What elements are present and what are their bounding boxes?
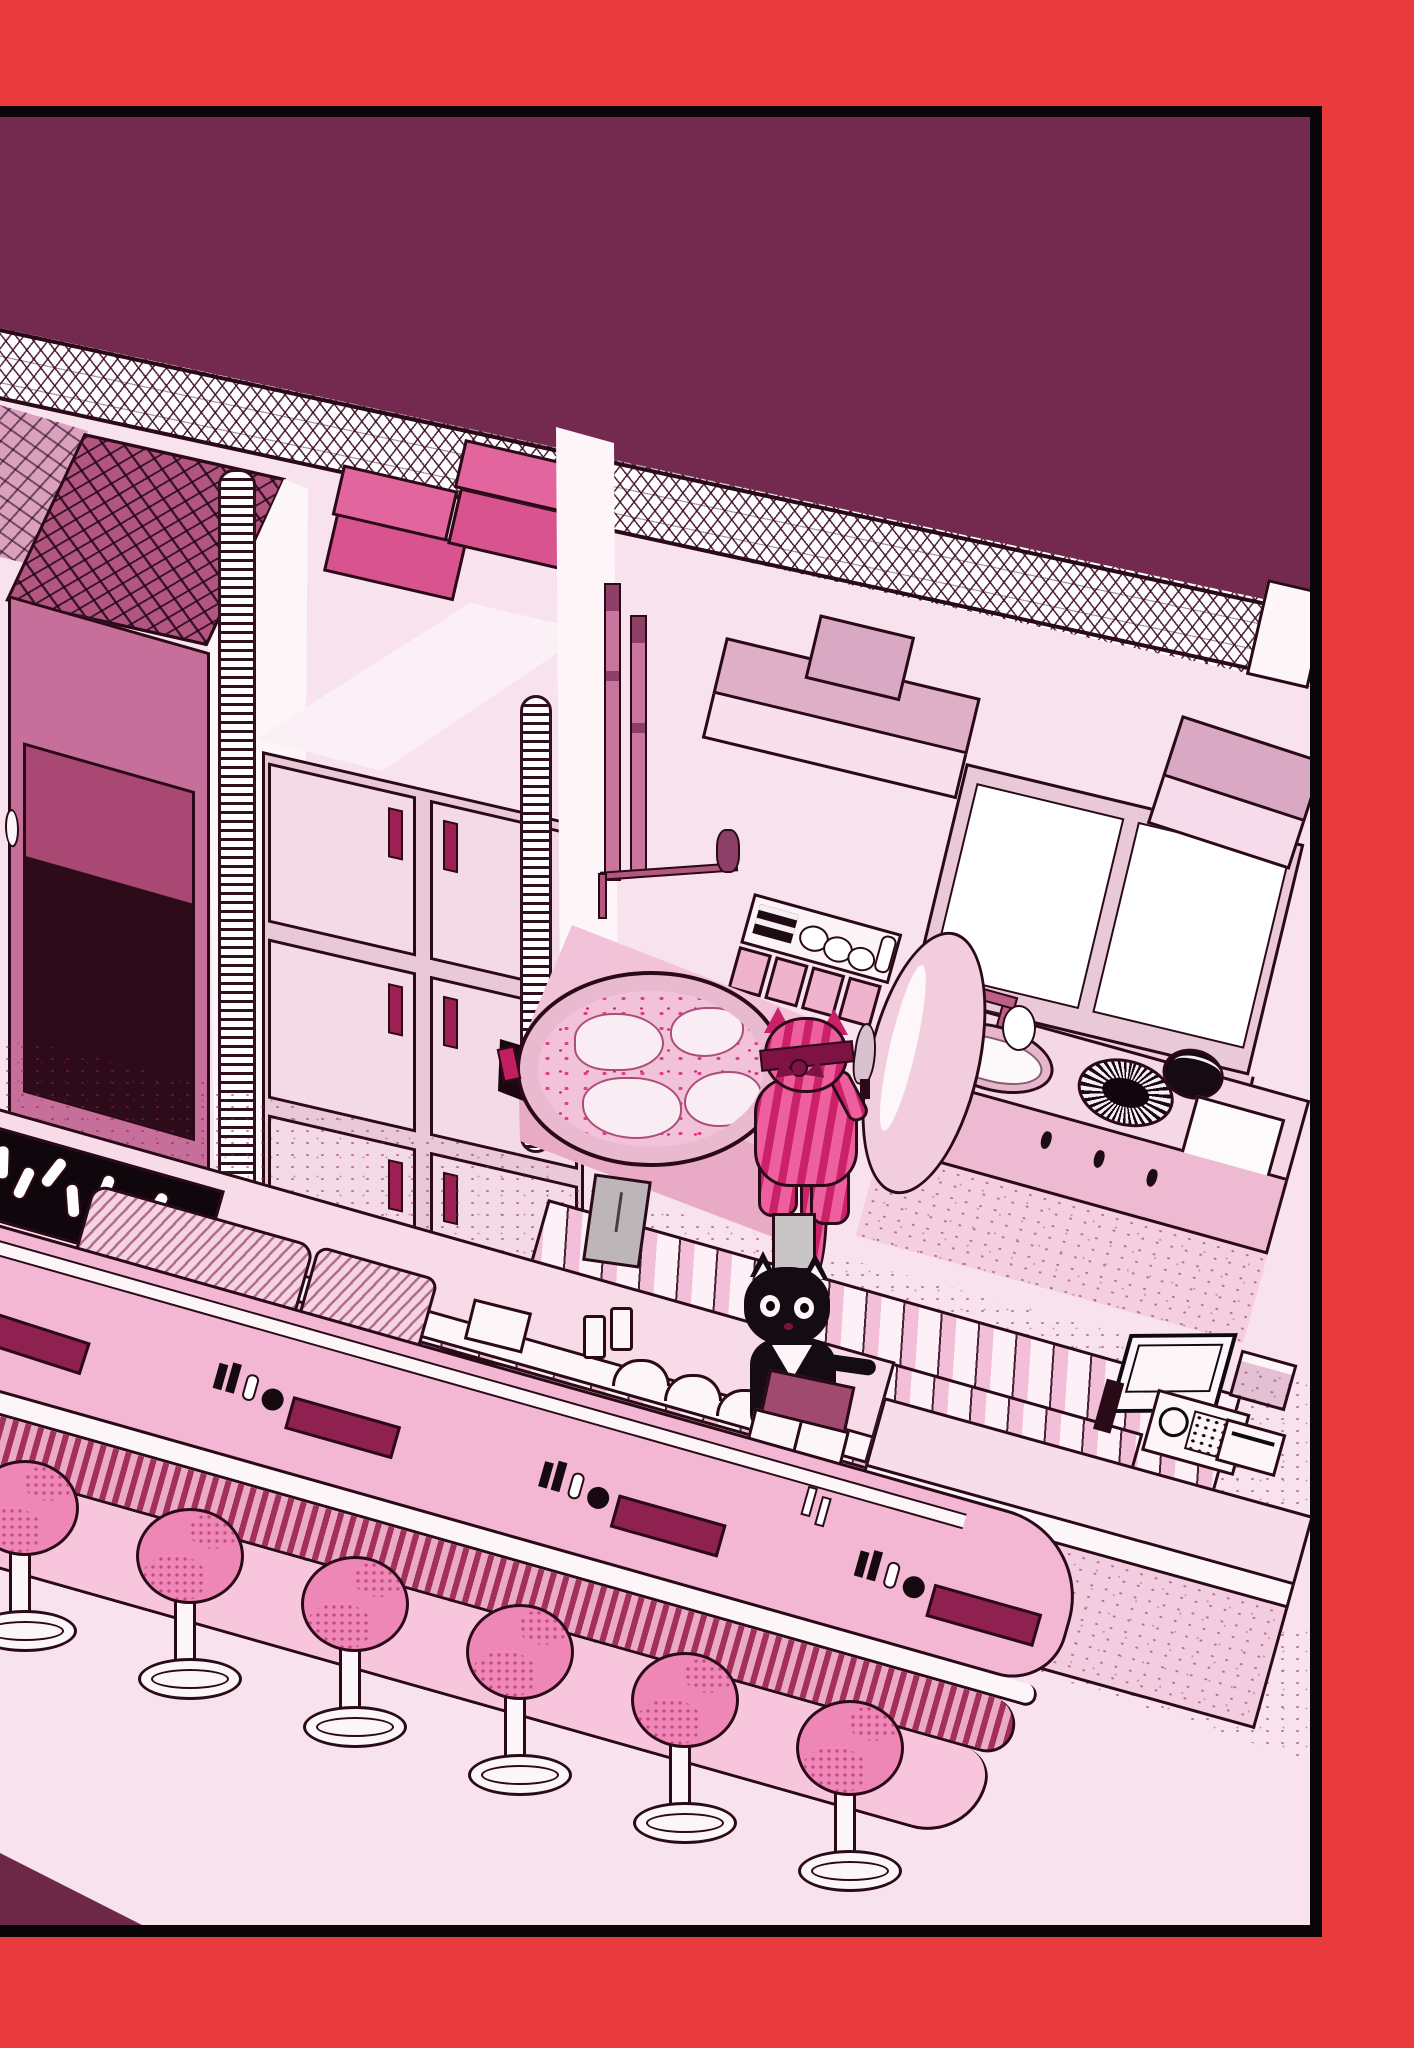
napkin-box <box>610 1494 727 1557</box>
napkin-box <box>925 1584 1042 1647</box>
bar-stool <box>790 1700 910 1915</box>
locker-handle <box>443 996 458 1049</box>
stool-base <box>138 1658 242 1700</box>
stool-base <box>798 1850 902 1892</box>
broth-blob <box>582 1077 682 1139</box>
cat-eye <box>794 1297 814 1319</box>
knife-blade <box>850 1022 880 1086</box>
bottle <box>9 1163 38 1202</box>
shaker <box>241 1373 261 1403</box>
locker-handle <box>388 807 403 860</box>
cup <box>610 1307 633 1351</box>
bottle <box>873 934 899 975</box>
ladle-head <box>1002 1005 1036 1051</box>
condiment-ball <box>900 1574 927 1601</box>
pipe <box>604 583 621 881</box>
stool-seat <box>631 1652 739 1748</box>
condiment-ball <box>585 1484 612 1511</box>
bar-stool <box>625 1652 745 1867</box>
napkin-box <box>0 1309 91 1376</box>
condiment-set <box>530 1455 739 1567</box>
burner-knob <box>1039 1130 1053 1150</box>
bottle <box>0 1144 11 1180</box>
cat-head <box>744 1267 830 1345</box>
stool-seat <box>796 1700 904 1796</box>
napkin-box <box>284 1396 401 1459</box>
condiment-ball <box>259 1386 286 1413</box>
bar-stool <box>295 1556 415 1771</box>
fridge-hinge <box>5 807 19 849</box>
soup-pot <box>516 971 786 1167</box>
chopstick-stand <box>800 1486 818 1518</box>
knife-handle <box>860 1079 870 1099</box>
burner-knob <box>1092 1149 1106 1169</box>
bar-stool <box>0 1460 85 1675</box>
black-cat <box>742 1259 882 1459</box>
bar-stool <box>460 1604 580 1819</box>
stool-seat <box>466 1604 574 1700</box>
shaker <box>566 1471 586 1501</box>
faucet-spout <box>598 873 607 919</box>
stool-seat <box>0 1460 79 1556</box>
tap-body <box>716 829 740 873</box>
chopstick-stand <box>814 1496 832 1528</box>
stool-base <box>633 1802 737 1844</box>
stool-base <box>468 1754 572 1796</box>
locker-handle <box>388 983 403 1036</box>
dustpan <box>582 1173 652 1268</box>
wok-center <box>1099 1073 1153 1114</box>
condiment-set <box>205 1357 414 1469</box>
pipe <box>630 615 647 877</box>
locker-handle <box>443 820 458 873</box>
card-reader-box <box>1229 1350 1298 1412</box>
bar-stool <box>130 1508 250 1723</box>
range-hood <box>702 637 981 799</box>
stool-base <box>0 1610 77 1652</box>
cat-eye <box>760 1295 780 1317</box>
stool-seat <box>136 1508 244 1604</box>
stool-base <box>303 1706 407 1748</box>
pot-broth <box>538 991 764 1147</box>
artwork-canvas <box>0 117 1310 1925</box>
bottle <box>64 1182 82 1219</box>
broth-blob <box>574 1013 664 1071</box>
cat-nose <box>784 1323 793 1330</box>
locker-door <box>268 762 416 956</box>
shaker <box>882 1560 902 1590</box>
page-frame <box>0 0 1414 2048</box>
burner-knob <box>1145 1168 1159 1188</box>
tray-stack <box>752 904 799 944</box>
broth-blob <box>670 1007 744 1057</box>
cup <box>583 1315 606 1359</box>
stool-seat <box>301 1556 409 1652</box>
